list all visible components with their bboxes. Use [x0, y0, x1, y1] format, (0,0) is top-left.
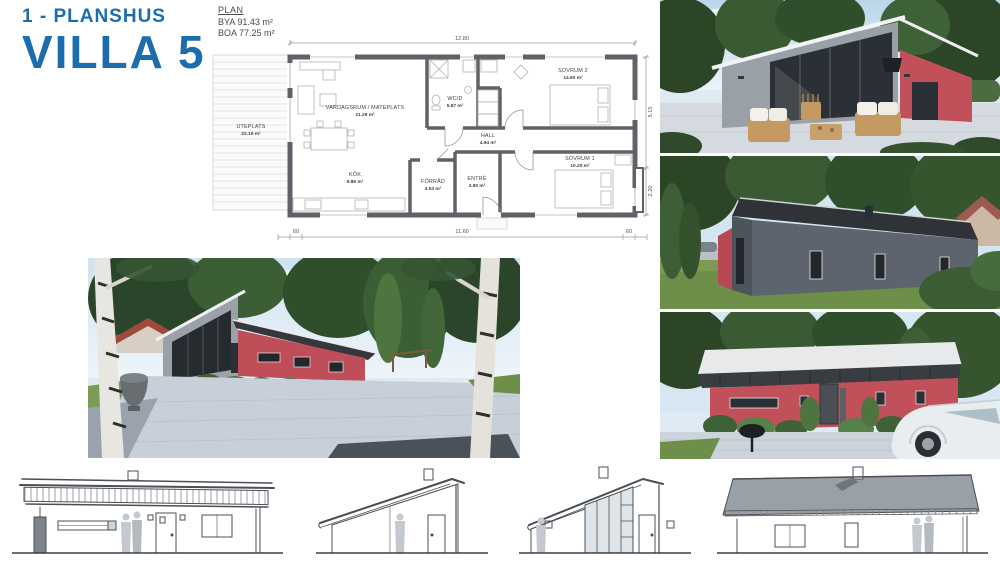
room-label-sovrum1: SOVRUM 1: [565, 156, 595, 162]
elevation-left-gable: [312, 465, 492, 560]
room-label-hall: HALL: [481, 133, 495, 139]
floor-plan: UTEPLATS 22.19 m² VARDAGSRUM / MATEPLATS…: [205, 0, 655, 250]
render-patio-view-image: [660, 0, 1000, 153]
svg-text:22.19 m²: 22.19 m²: [241, 131, 261, 137]
elevation-entrance-facade: [10, 465, 285, 560]
svg-text:10.20 m²: 10.20 m²: [570, 163, 590, 169]
svg-text:3.53 m²: 3.53 m²: [425, 186, 442, 192]
svg-text:5.87 m²: 5.87 m²: [447, 103, 464, 109]
dim-right-lower: 2.20: [648, 186, 654, 197]
dim-right-upper: 5.15: [648, 107, 654, 118]
dim-overall-width: 12.80: [455, 36, 469, 42]
room-label-sovrum2: SOVRUM 2: [558, 68, 588, 74]
render-patio-view: [660, 0, 1000, 153]
room-label-entre: ENTRÉ: [467, 175, 486, 182]
svg-text:4.94 m²: 4.94 m²: [480, 140, 497, 146]
render-driveway-perspective: [88, 258, 520, 458]
page-title: VILLA 5: [22, 29, 206, 75]
project-type-label: 1 - PLANSHUS: [22, 6, 206, 28]
room-label-vardagsrum: VARDAGSRUM / MATEPLATS: [326, 105, 405, 111]
render-rear-corner-view-image: [660, 156, 1000, 309]
svg-text:14.80 m²: 14.80 m²: [563, 75, 583, 81]
room-label-wcd: WC/D: [447, 96, 462, 102]
svg-text:21.29 m²: 21.29 m²: [355, 112, 375, 118]
title-block: 1 - PLANSHUS VILLA 5: [22, 6, 206, 75]
svg-text:9.86 m²: 9.86 m²: [347, 179, 364, 185]
svg-text:3.90 m²: 3.90 m²: [469, 183, 486, 189]
furniture: [293, 60, 631, 211]
presentation-sheet: 1 - PLANSHUS VILLA 5 PLAN BYA 91.43 m² B…: [0, 0, 1000, 562]
dim-eave-right: 60: [626, 229, 632, 235]
room-label-kok: KÖK: [349, 171, 361, 178]
dim-interior-width: 11.60: [455, 229, 469, 235]
room-label-forrad: FÖRRÅD: [421, 178, 445, 185]
render-street-front-view-image: [660, 312, 1000, 459]
room-label-uteplats: UTEPLATS: [236, 124, 265, 130]
render-driveway-perspective-image: [88, 258, 520, 458]
person-silhouettes: [121, 512, 142, 554]
dim-eave-left: 60: [293, 229, 299, 235]
person-silhouettes: [912, 516, 934, 554]
elevation-rear-facade: [715, 465, 990, 560]
render-rear-corner-view: [660, 156, 1000, 309]
render-street-front-view: [660, 312, 1000, 459]
elevation-right-gable: [515, 465, 695, 560]
